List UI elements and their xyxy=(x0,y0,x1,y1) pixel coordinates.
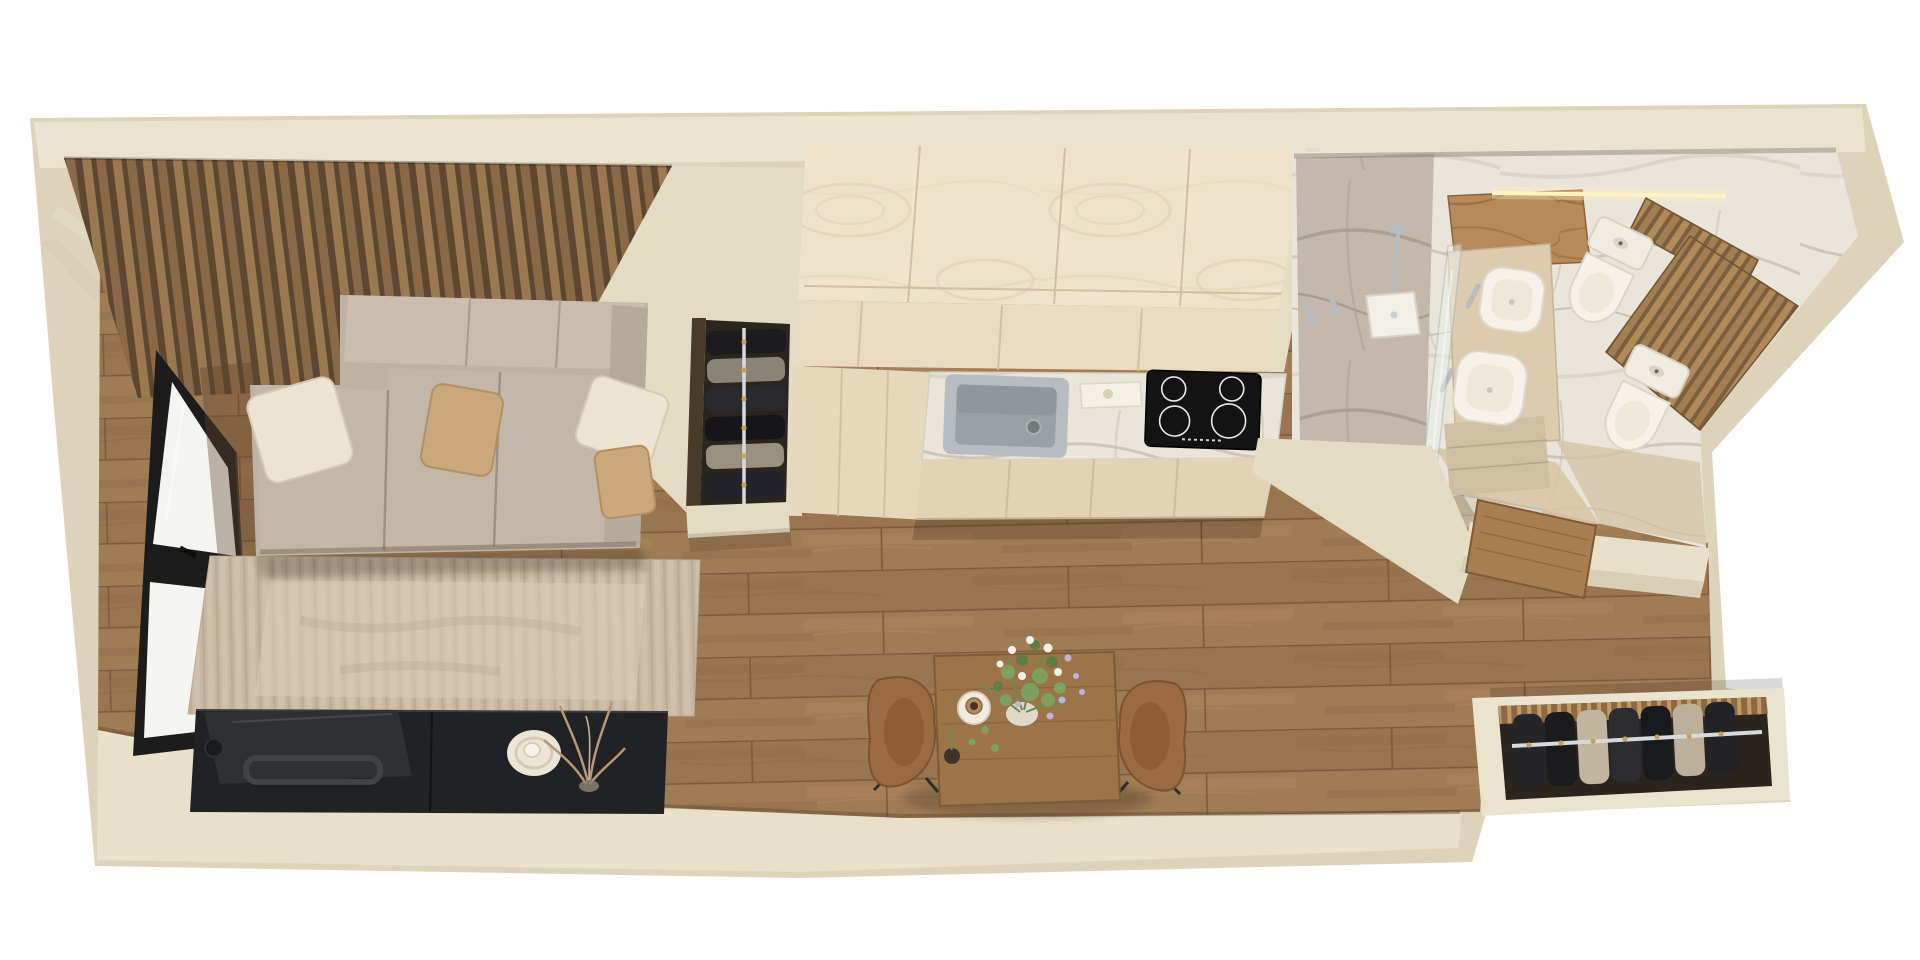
bath-vanity-cabinet xyxy=(1444,416,1550,496)
area-rug xyxy=(188,556,700,716)
sofa-backrest xyxy=(344,295,644,370)
vessel-basin-1 xyxy=(1477,265,1547,335)
kitchen-left-front xyxy=(788,366,930,520)
shower-head-center xyxy=(1391,312,1398,319)
tray-cup xyxy=(524,743,540,757)
decor-vase-black xyxy=(205,739,223,757)
sofa-pillow-tan-small xyxy=(594,445,657,520)
tv-console-group xyxy=(190,702,668,814)
induction-cooktop xyxy=(1145,370,1262,450)
rug-light-wash xyxy=(255,580,645,700)
coffee xyxy=(970,702,978,710)
twig-vase xyxy=(579,780,599,792)
floor-plan-svg xyxy=(0,0,1920,960)
kitchen-lower-front xyxy=(916,458,1276,520)
vessel-basin-2 xyxy=(1450,348,1529,427)
floor-plan-render xyxy=(0,0,1920,960)
small-bottle xyxy=(944,748,960,764)
entry-closet xyxy=(1472,678,1790,816)
tray-item xyxy=(1103,389,1113,399)
dining-table xyxy=(934,652,1120,806)
living-room xyxy=(64,158,700,814)
kitchen xyxy=(788,142,1320,540)
kitchen-floor-shadow xyxy=(912,516,1264,540)
chair-left-seat xyxy=(884,698,924,766)
chair-right-seat xyxy=(1130,702,1170,770)
open-wardrobe-living xyxy=(686,318,792,552)
kitchen-sink xyxy=(943,374,1070,458)
sofa-pillow-tan xyxy=(419,382,504,477)
kitchen-mid-band xyxy=(794,300,1296,372)
sink-drain xyxy=(1026,420,1040,434)
